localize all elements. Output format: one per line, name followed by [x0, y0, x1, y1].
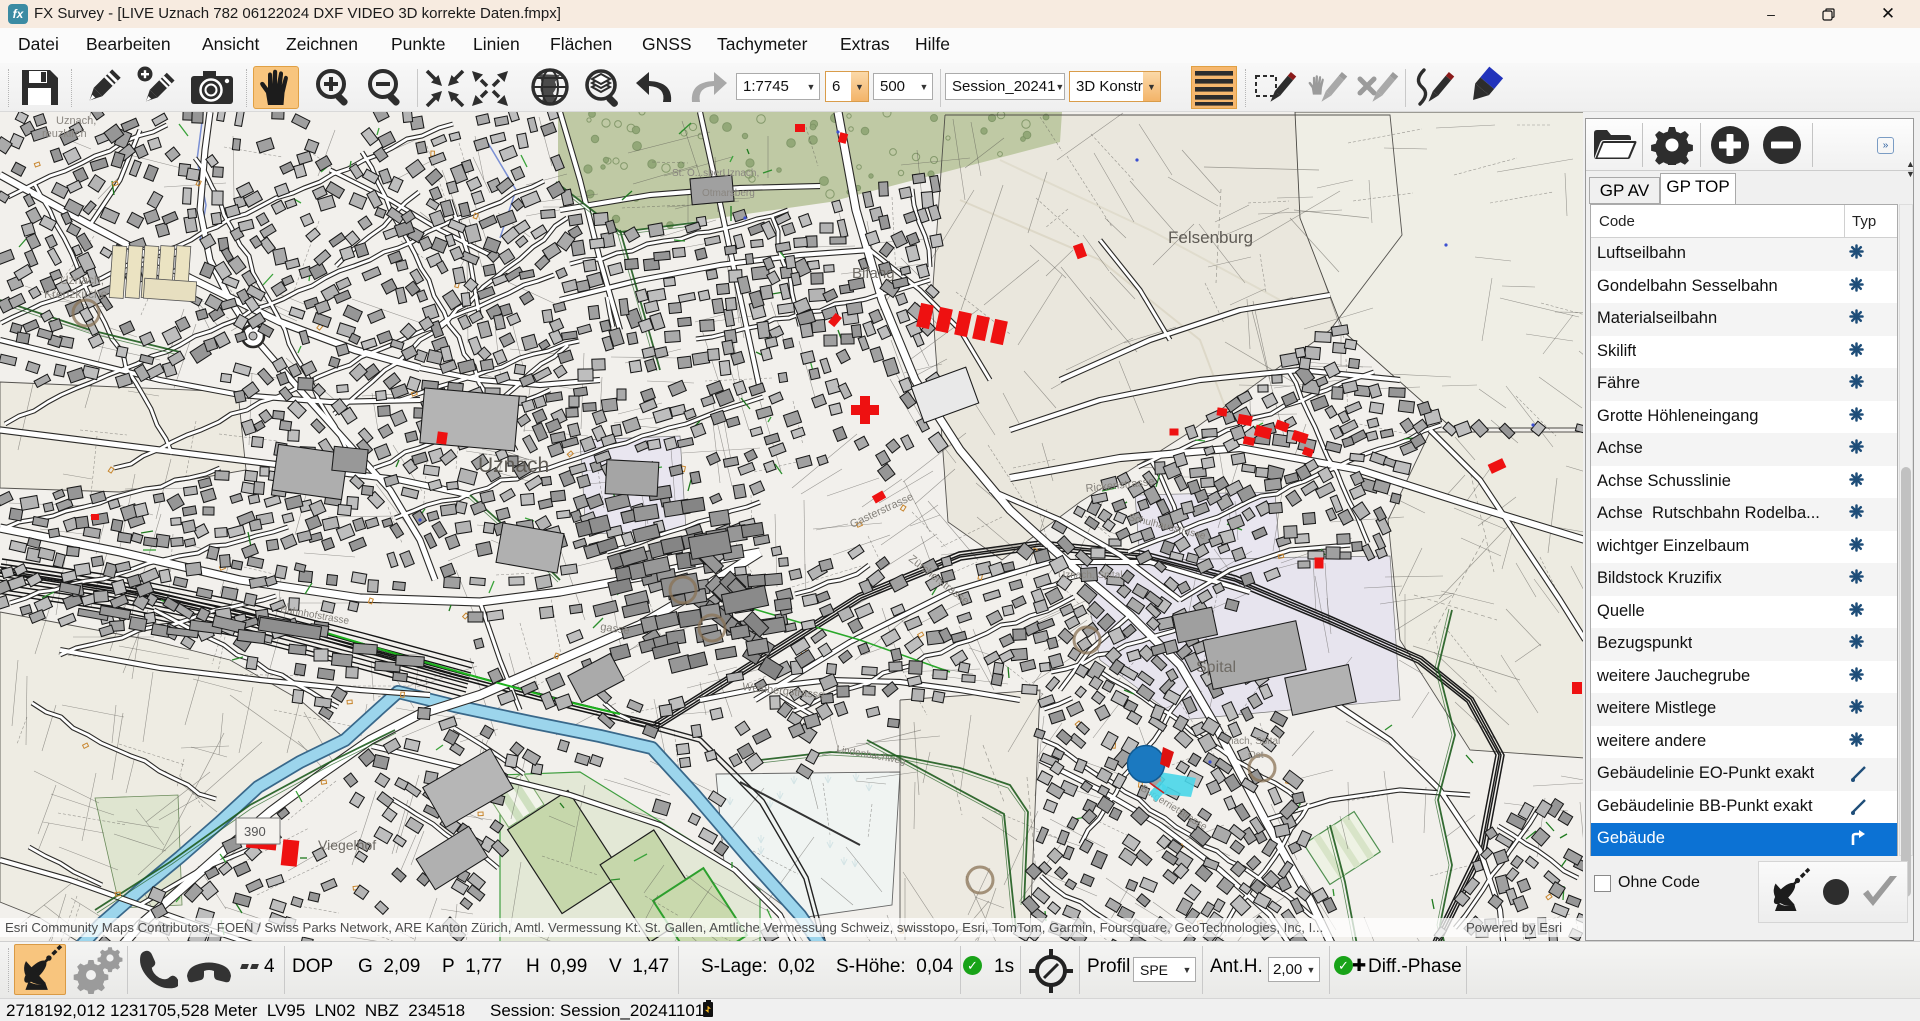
svg-text:Uznach: Uznach: [478, 454, 549, 477]
svg-text:Esri Community Maps Contributo: Esri Community Maps Contributors, FOEN /…: [5, 920, 1323, 935]
svg-text:Spital: Spital: [1196, 659, 1236, 676]
svg-text:Uznach, Spital: Uznach, Spital: [1058, 570, 1122, 581]
svg-text:Powered by Esri: Powered by Esri: [1466, 920, 1562, 935]
svg-text:Kreuzkirche: Kreuzkirche: [44, 287, 108, 301]
svg-text:reuzkirch: reuzkirch: [42, 128, 87, 140]
svg-text:Felsenburg: Felsenburg: [1168, 228, 1253, 247]
svg-text:390: 390: [244, 824, 266, 839]
svg-text:Uznach,: Uznach,: [56, 115, 96, 127]
svg-text:Ost: Ost: [1248, 750, 1264, 761]
svg-text:Otmarsberg: Otmarsberg: [702, 188, 755, 199]
svg-text:Uznach,: Uznach,: [60, 273, 104, 287]
svg-text:Bifang: Bifang: [852, 265, 895, 282]
svg-text:nach, Spital: nach, Spital: [1228, 736, 1280, 747]
svg-text:Viegelhof: Viegelhof: [318, 837, 376, 853]
svg-text:St. O...sberUznach,: St. O...sberUznach,: [672, 168, 759, 179]
